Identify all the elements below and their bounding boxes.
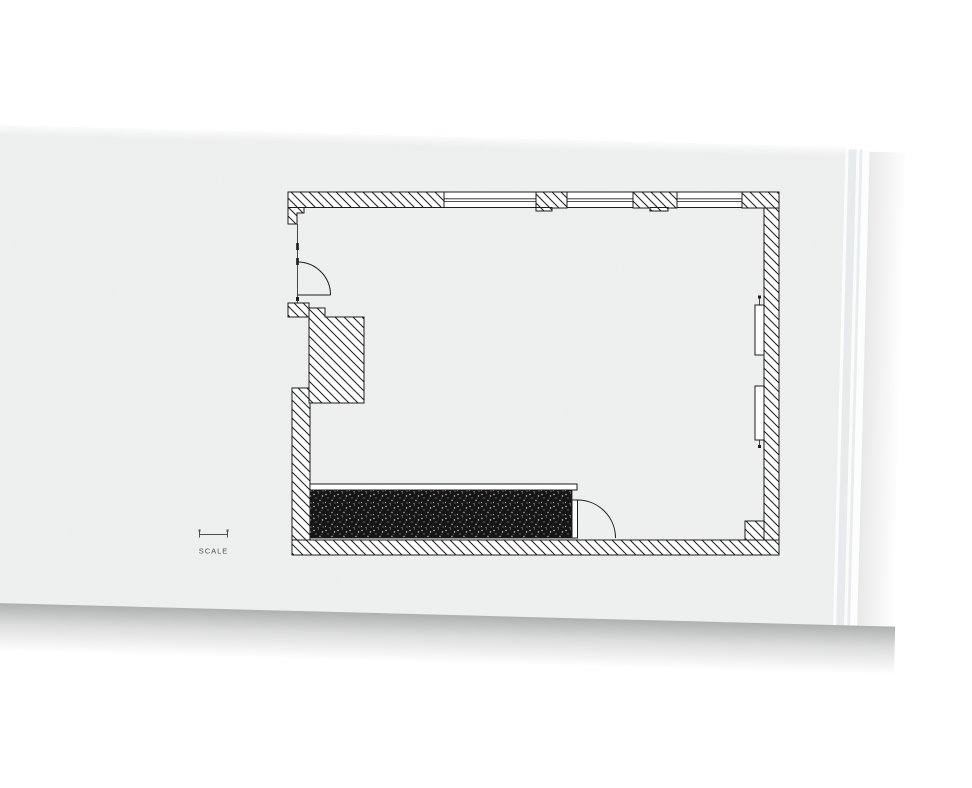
book-page-photo: SCALE [0, 0, 972, 788]
scale-bar-dot-left [199, 530, 201, 532]
wall-bottom [292, 540, 779, 555]
page-canvas: SCALE [0, 0, 972, 788]
counter-with-dark-poche [310, 484, 577, 538]
window-pier-1-lip [536, 208, 552, 212]
wall-left-lower [292, 388, 310, 540]
entry-door-tick-1 [296, 243, 299, 250]
counter-top-strip [310, 484, 577, 490]
window-1 [444, 192, 536, 208]
window-pier-2 [633, 192, 677, 208]
radiator-2 [755, 386, 764, 448]
window-2 [567, 192, 633, 208]
wall-top-left-segment [288, 192, 444, 208]
wall-top-right-corner [742, 192, 779, 208]
window-pier-2-lip [650, 208, 668, 212]
radiator-2-body [755, 386, 764, 440]
chimney-breast-main-block [309, 308, 364, 403]
radiator-1-body [755, 305, 764, 355]
chimney-breast-left-block [288, 303, 309, 317]
wall-bottom-right-pilaster [745, 521, 764, 540]
radiator-2-valve [758, 445, 761, 448]
window-pier-1 [536, 192, 567, 208]
scale-bar-dot-right [227, 530, 229, 532]
scale-label: SCALE [199, 547, 229, 556]
wall-right [764, 208, 779, 555]
entry-door-hinge-mark [296, 297, 299, 301]
dark-poche-band [310, 490, 572, 538]
window-3 [677, 192, 742, 208]
radiator-1-valve [758, 296, 761, 299]
interior-door-leaf [572, 500, 578, 538]
